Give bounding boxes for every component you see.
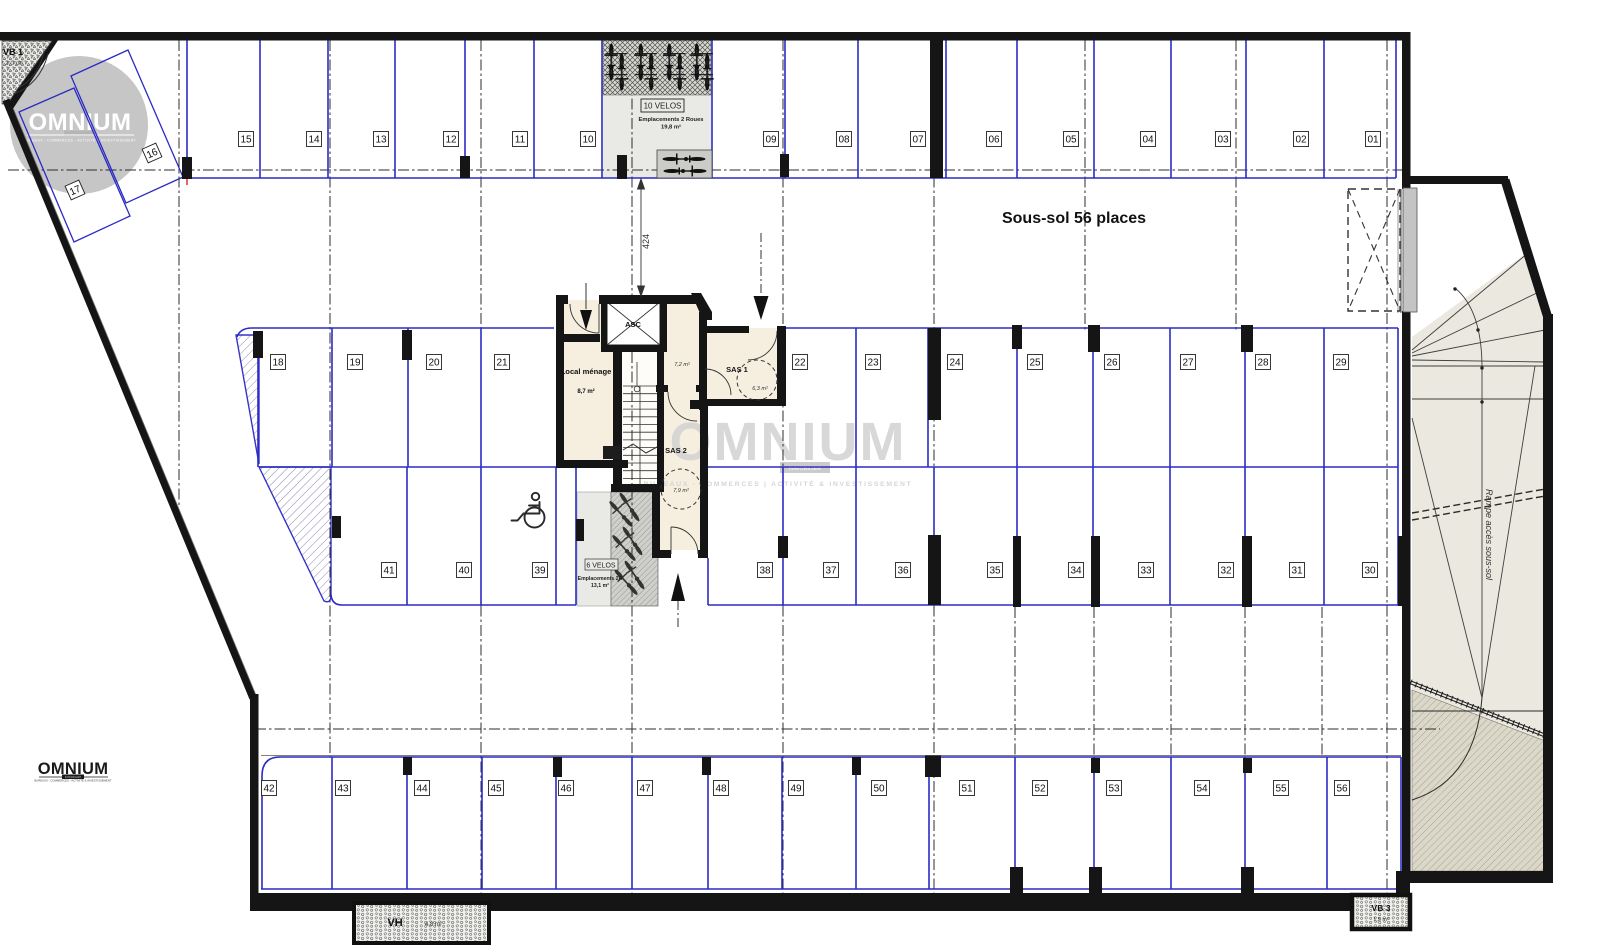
svg-text:38: 38	[759, 566, 771, 577]
svg-text:04: 04	[1142, 135, 1154, 146]
svg-text:10 VELOS: 10 VELOS	[644, 102, 682, 111]
svg-text:43: 43	[337, 784, 349, 795]
svg-text:10: 10	[582, 135, 594, 146]
svg-text:27: 27	[1182, 358, 1194, 369]
svg-text:BUREAUX - COMMERCES | ACTIVITÉ: BUREAUX - COMMERCES | ACTIVITÉ & INVESTI…	[644, 479, 913, 488]
svg-text:45: 45	[490, 784, 502, 795]
svg-text:BUREAUX - COMMERCES - ACTIVITÉ: BUREAUX - COMMERCES - ACTIVITÉ & INVESTI…	[34, 778, 112, 783]
svg-text:34: 34	[1070, 566, 1082, 577]
svg-text:VH: VH	[387, 917, 402, 929]
svg-text:07: 07	[912, 135, 924, 146]
svg-text:15: 15	[240, 135, 252, 146]
svg-text:36: 36	[897, 566, 909, 577]
svg-text:08: 08	[838, 135, 850, 146]
svg-text:28: 28	[1257, 358, 1269, 369]
svg-text:30: 30	[1364, 566, 1376, 577]
svg-text:8,7 m²: 8,7 m²	[577, 388, 594, 395]
svg-text:22: 22	[794, 358, 806, 369]
svg-text:18: 18	[272, 358, 284, 369]
svg-text:46: 46	[560, 784, 572, 795]
svg-text:03: 03	[1217, 135, 1229, 146]
svg-text:VB 3: VB 3	[1372, 903, 1391, 913]
svg-text:35: 35	[989, 566, 1001, 577]
svg-text:42: 42	[263, 784, 275, 795]
svg-text:37: 37	[825, 566, 837, 577]
svg-text:11: 11	[515, 135, 526, 146]
svg-text:25: 25	[1029, 358, 1041, 369]
svg-text:4,8 m²: 4,8 m²	[425, 922, 442, 928]
svg-text:39: 39	[534, 566, 546, 577]
svg-text:6,3 m²: 6,3 m²	[752, 386, 768, 392]
svg-text:44: 44	[416, 784, 428, 795]
svg-text:09: 09	[765, 135, 777, 146]
svg-text:48: 48	[715, 784, 727, 795]
svg-text:19: 19	[349, 358, 361, 369]
svg-text:29: 29	[1335, 358, 1347, 369]
svg-text:02: 02	[1295, 135, 1307, 146]
svg-text:26: 26	[1106, 358, 1118, 369]
svg-text:14: 14	[308, 135, 320, 146]
svg-text:Rampe accès sous-sol: Rampe accès sous-sol	[1484, 489, 1494, 581]
svg-text:55: 55	[1275, 784, 1287, 795]
svg-text:Local ménage: Local ménage	[561, 367, 612, 376]
svg-text:05: 05	[1065, 135, 1077, 146]
svg-text:33: 33	[1140, 566, 1152, 577]
svg-text:424: 424	[641, 234, 651, 249]
svg-text:06: 06	[988, 135, 1000, 146]
svg-text:54: 54	[1196, 784, 1208, 795]
svg-text:ASC: ASC	[625, 320, 641, 329]
svg-text:51: 51	[961, 784, 973, 795]
svg-text:24: 24	[949, 358, 961, 369]
svg-text:7,2 m²: 7,2 m²	[674, 362, 690, 368]
svg-text:SAS 2: SAS 2	[665, 446, 687, 455]
svg-text:49: 49	[790, 784, 802, 795]
svg-text:56: 56	[1336, 784, 1348, 795]
svg-text:31: 31	[1291, 566, 1303, 577]
svg-text:41: 41	[383, 566, 395, 577]
svg-text:7,9 m²: 7,9 m²	[673, 488, 689, 494]
svg-text:19,8 m²: 19,8 m²	[661, 124, 681, 131]
svg-text:40: 40	[458, 566, 470, 577]
svg-text:SAS 1: SAS 1	[726, 365, 748, 374]
svg-text:12: 12	[445, 135, 457, 146]
svg-text:Emplacements 2R: Emplacements 2R	[578, 576, 623, 582]
svg-text:50: 50	[873, 784, 885, 795]
svg-text:BUREAUX - COMMERCES - ACTIVITÉ: BUREAUX - COMMERCES - ACTIVITÉ & INVESTI…	[24, 138, 136, 143]
svg-text:23: 23	[867, 358, 879, 369]
svg-text:6 VELOS: 6 VELOS	[586, 563, 616, 570]
svg-text:53: 53	[1108, 784, 1120, 795]
svg-text:Emplacements 2 Roues: Emplacements 2 Roues	[638, 117, 703, 123]
svg-text:1,5 m²: 1,5 m²	[1373, 917, 1389, 923]
svg-text:32: 32	[1220, 566, 1232, 577]
svg-text:13: 13	[375, 135, 387, 146]
svg-text:13,1 m²: 13,1 m²	[591, 583, 609, 589]
svg-text:2,0 m²: 2,0 m²	[5, 60, 24, 67]
svg-text:52: 52	[1034, 784, 1046, 795]
svg-text:VB 1: VB 1	[3, 47, 23, 57]
svg-text:01: 01	[1367, 135, 1379, 146]
svg-text:Sous-sol 56 places: Sous-sol 56 places	[1002, 210, 1146, 227]
svg-text:20: 20	[428, 358, 440, 369]
svg-text:47: 47	[639, 784, 651, 795]
svg-text:21: 21	[496, 358, 508, 369]
